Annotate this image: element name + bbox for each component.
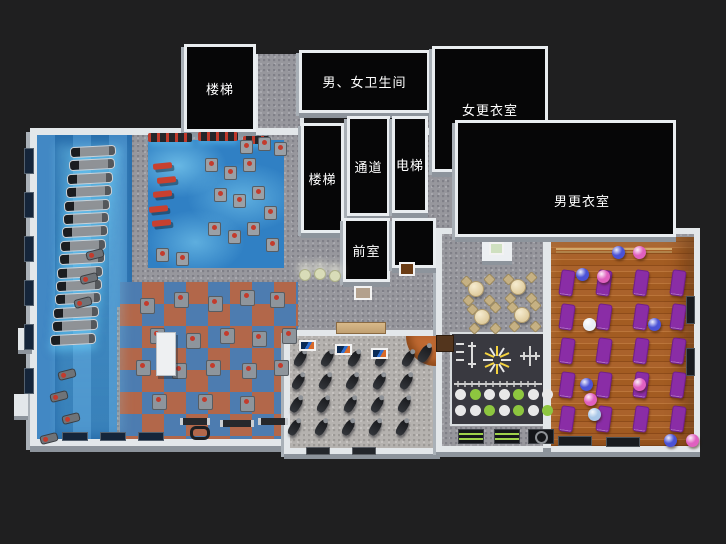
plate-loaded-machine (186, 333, 201, 349)
strength-machine (247, 222, 260, 236)
strength-machine (258, 137, 271, 151)
window (686, 296, 695, 324)
plate-loaded-machine (152, 394, 167, 410)
window (24, 280, 34, 306)
plate-loaded-machine (206, 360, 221, 376)
wall-picture (354, 286, 372, 300)
reception-desk (336, 322, 386, 334)
window-bay (494, 429, 520, 444)
plate-loaded-machine (208, 296, 223, 312)
room-corridor: 通道 (347, 116, 390, 216)
strength-machine (243, 158, 256, 172)
strength-machine (240, 140, 253, 154)
plate-loaded-machine (282, 328, 297, 344)
window (138, 432, 164, 441)
strength-machine (252, 186, 265, 200)
cable-tower (156, 332, 176, 376)
strength-machine (266, 238, 279, 252)
floor-circle-marker (528, 405, 539, 416)
window-bay (528, 429, 554, 444)
plate-loaded-machine (220, 328, 235, 344)
room-label: 楼梯 (206, 79, 234, 98)
floor-circle-marker (542, 389, 553, 400)
room-shaft-unlabeled (392, 218, 436, 268)
floor-circle-marker (513, 389, 524, 400)
room-label: 楼梯 (308, 169, 336, 188)
window (24, 236, 34, 262)
plate-loaded-machine (270, 292, 285, 308)
window (62, 432, 88, 441)
plate-loaded-machine (252, 331, 267, 347)
room-stairs-middle: 楼梯 (301, 123, 344, 233)
floor-circle-marker (470, 389, 481, 400)
floor-circle-marker (499, 389, 510, 400)
window (24, 192, 34, 218)
treadmill (67, 172, 114, 185)
wall-poster (335, 344, 352, 355)
strength-machine (208, 222, 221, 236)
barbell-rack (258, 418, 288, 425)
room-men-locker: 男更衣室 (455, 120, 676, 237)
window (24, 368, 34, 394)
exercise-ball (633, 246, 646, 259)
notice-board (436, 335, 454, 352)
floor-circle-marker (484, 389, 495, 400)
treadmill (64, 198, 111, 211)
window (24, 148, 34, 174)
hex-bar (190, 426, 210, 440)
plate-loaded-machine (240, 396, 255, 412)
dumbbell-rack (198, 132, 238, 141)
window (606, 437, 640, 447)
floor-circle-marker (455, 405, 466, 416)
floor-circle-marker (499, 405, 510, 416)
exercise-ball (648, 318, 661, 331)
exercise-ball (576, 268, 589, 281)
wall-poster (299, 340, 316, 351)
room-label: 前室 (352, 241, 380, 260)
window (686, 348, 695, 376)
exercise-ball (597, 270, 610, 283)
exercise-ball (588, 408, 601, 421)
dumbbell-rack (148, 133, 192, 142)
strength-machine (228, 230, 241, 244)
floor-circle-marker (470, 405, 481, 416)
room-label: 男更衣室 (554, 191, 610, 210)
strength-machine (205, 158, 218, 172)
room-label: 电梯 (396, 155, 424, 174)
barbell-rack (180, 418, 210, 425)
strength-machine (264, 206, 277, 220)
strength-machine (176, 252, 189, 266)
cafe-table (514, 307, 530, 323)
exercise-ball (664, 434, 677, 447)
plate-loaded-machine (242, 363, 257, 379)
floor-circle-marker (542, 405, 553, 416)
plate-loaded-machine (198, 394, 213, 410)
lounge-chair (314, 268, 326, 280)
exercise-ball (612, 246, 625, 259)
room-anteroom: 前室 (343, 218, 390, 282)
room-elevator: 电梯 (392, 116, 428, 213)
window (24, 324, 34, 350)
lounge-chair (299, 269, 311, 281)
window-bay (458, 429, 484, 444)
cafe-table (474, 309, 490, 325)
room-label: 女更衣室 (462, 100, 518, 119)
room-stairs-northwest: 楼梯 (184, 44, 256, 132)
treadmill (50, 332, 97, 345)
strength-machine (214, 188, 227, 202)
strength-machine (274, 142, 287, 156)
window (100, 432, 126, 441)
floor-circle-marker (484, 405, 495, 416)
plate-loaded-machine (240, 290, 255, 306)
plate-loaded-machine (136, 360, 151, 376)
barbell-rack (220, 420, 254, 427)
plate-loaded-machine (174, 292, 189, 308)
floor-circle-marker (528, 389, 539, 400)
window (352, 447, 376, 455)
window (306, 447, 330, 455)
strength-machine (224, 166, 237, 180)
room-label: 男、女卫生间 (322, 72, 406, 91)
window (558, 436, 592, 446)
wall-poster (371, 348, 388, 359)
floor-circle-marker (455, 389, 466, 400)
lounge-chair (329, 270, 341, 282)
exercise-ball (583, 318, 596, 331)
strength-machine (156, 248, 169, 262)
gym-floorplan: 楼梯 男、女卫生间 女更衣室 男更衣室 楼梯 通道 电梯 前室 (0, 0, 726, 544)
cafe-table (468, 281, 484, 297)
floor-circle-marker (513, 405, 524, 416)
plate-loaded-machine (140, 298, 155, 314)
cafe-table (510, 279, 526, 295)
exercise-ball (584, 393, 597, 406)
exercise-ball (580, 378, 593, 391)
room-label: 通道 (354, 157, 382, 176)
plate-loaded-machine (274, 360, 289, 376)
exercise-ball (686, 434, 699, 447)
room-restrooms: 男、女卫生间 (299, 50, 430, 113)
exercise-ball (633, 378, 646, 391)
wall-picture (489, 242, 504, 255)
wall-picture (399, 262, 415, 276)
wall-pilaster (14, 394, 28, 416)
strength-machine (233, 194, 246, 208)
